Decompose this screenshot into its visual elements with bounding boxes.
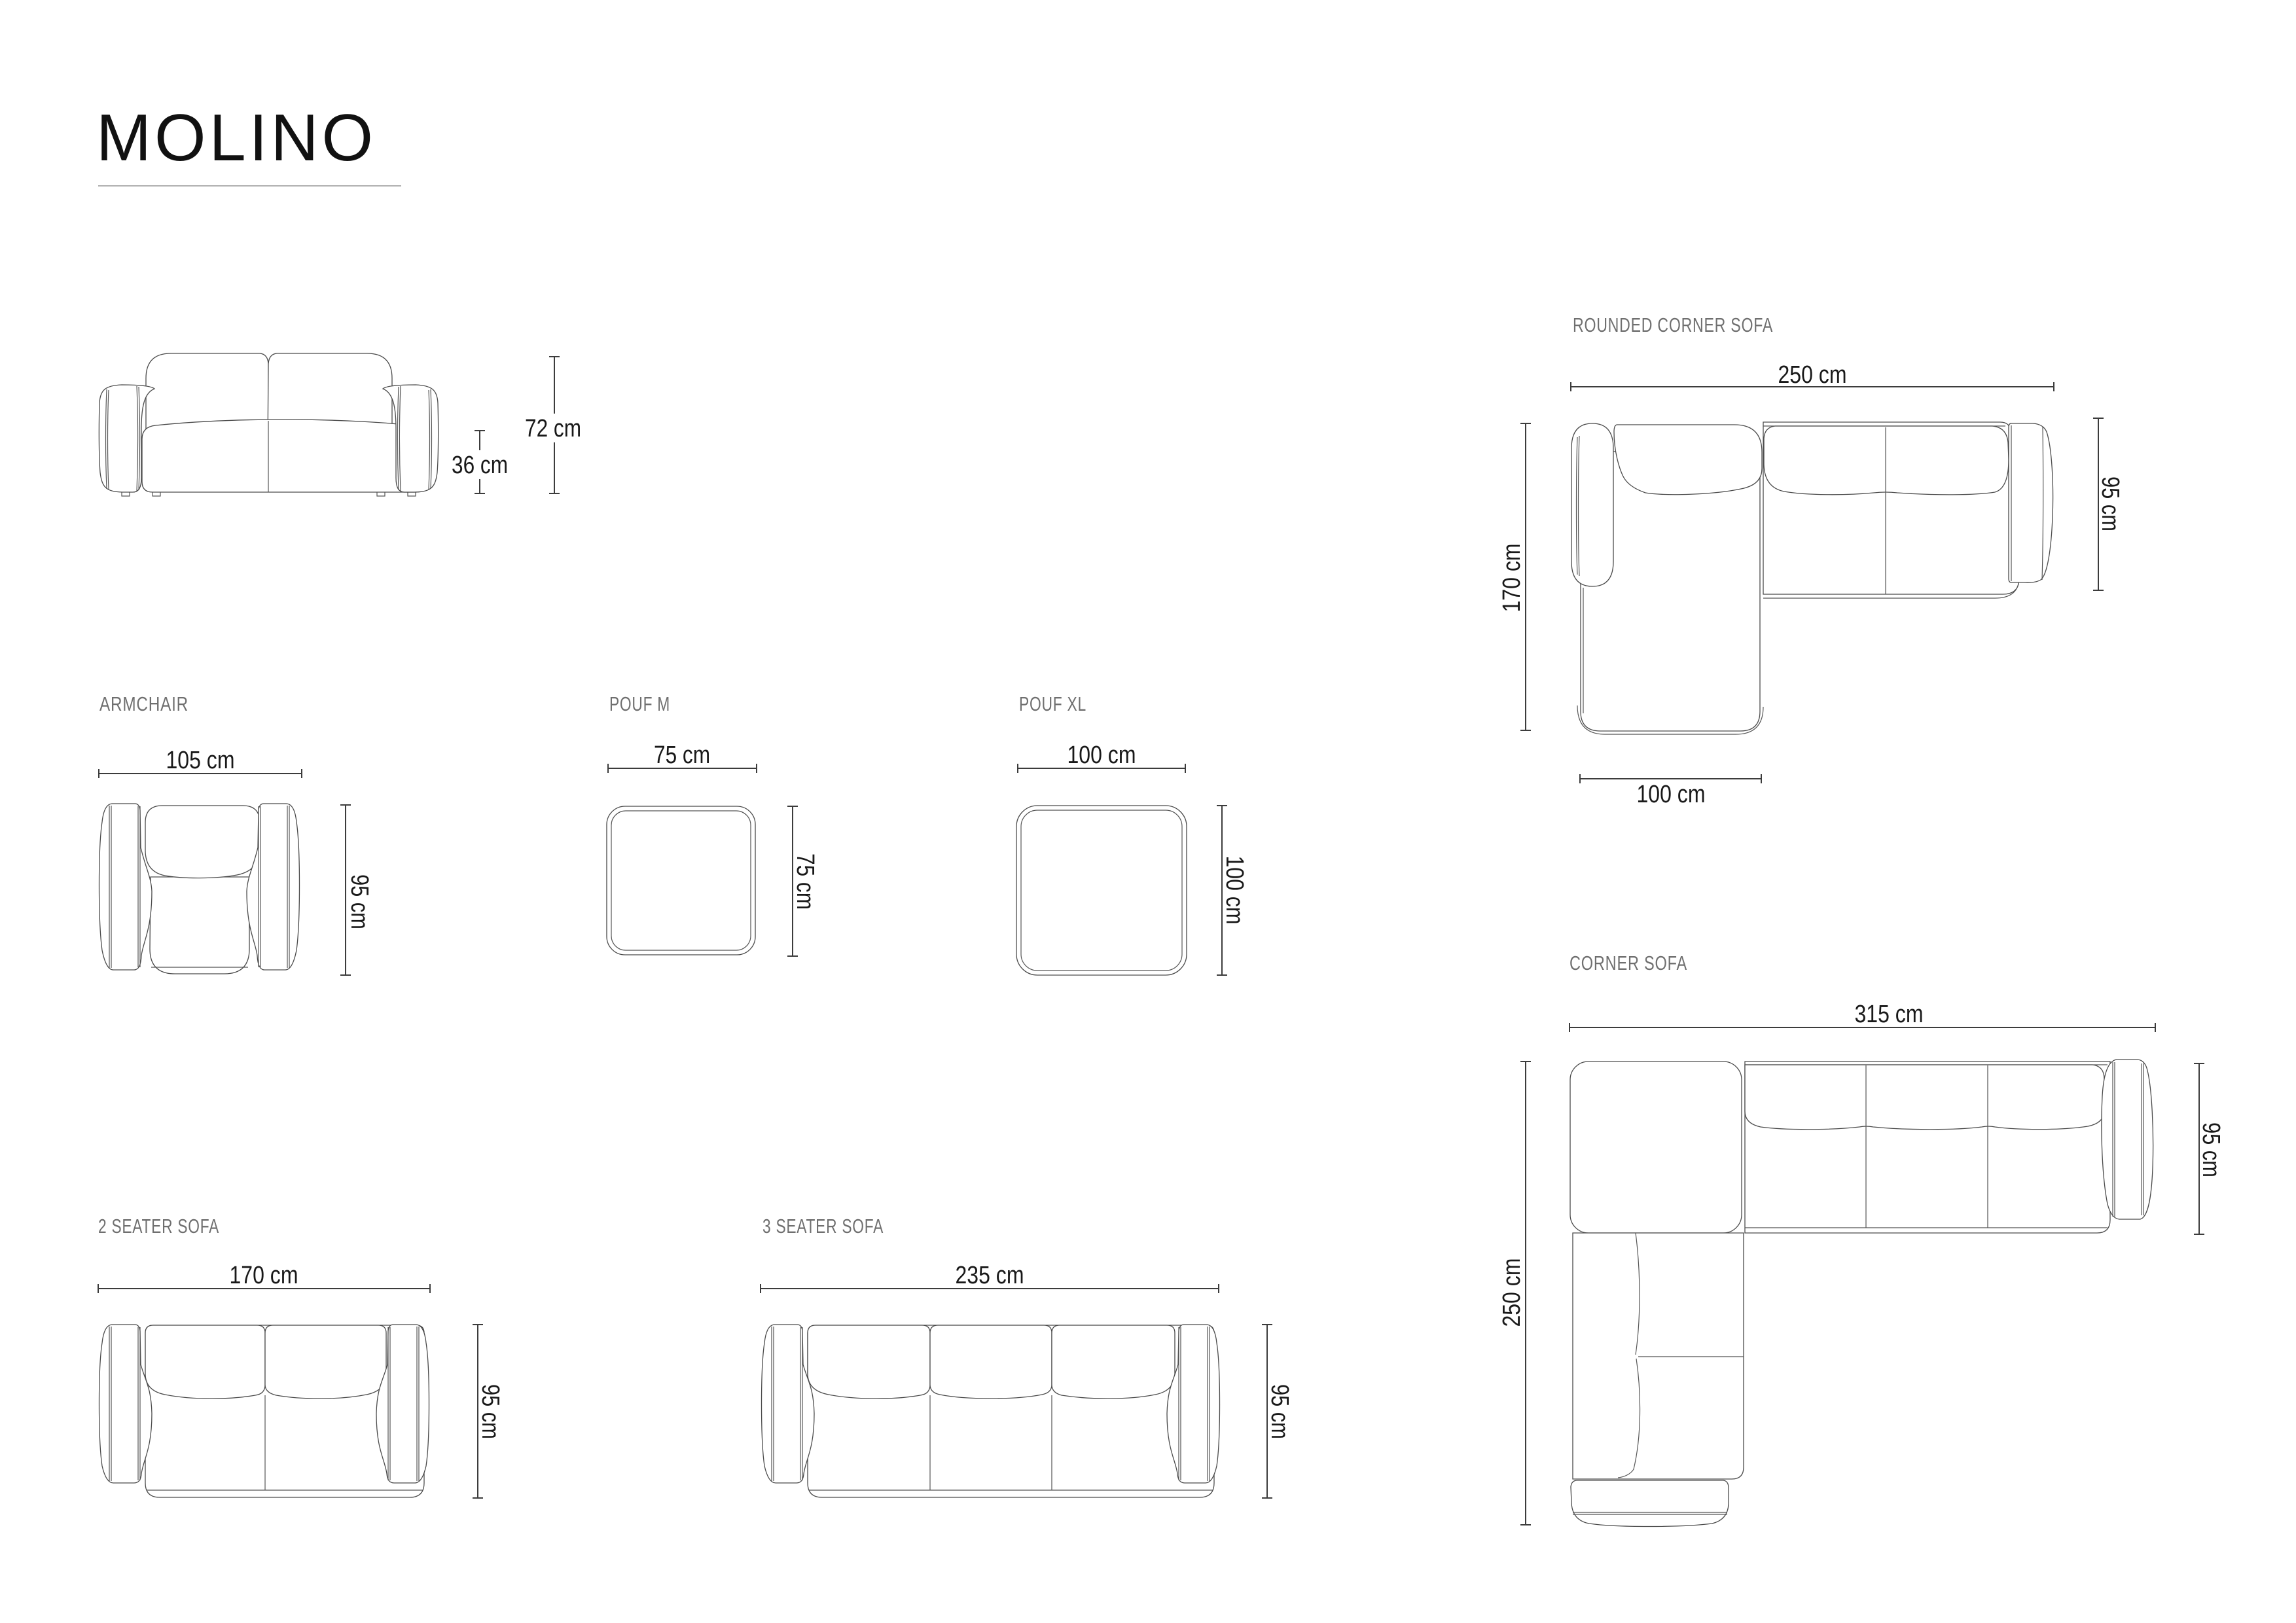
svg-text:100 cm: 100 cm	[1067, 741, 1136, 769]
svg-text:POUF M: POUF M	[609, 692, 670, 715]
svg-text:2 SEATER SOFA: 2 SEATER SOFA	[98, 1215, 219, 1238]
svg-text:3 SEATER SOFA: 3 SEATER SOFA	[762, 1215, 884, 1238]
svg-text:72 cm: 72 cm	[525, 415, 581, 442]
svg-text:100 cm: 100 cm	[1637, 781, 1706, 808]
svg-text:170 cm: 170 cm	[1498, 544, 1526, 613]
svg-text:75 cm: 75 cm	[654, 741, 710, 769]
svg-text:170 cm: 170 cm	[230, 1262, 298, 1289]
svg-text:95 cm: 95 cm	[476, 1384, 504, 1439]
svg-text:MOLINO: MOLINO	[96, 101, 373, 175]
svg-text:105 cm: 105 cm	[166, 747, 235, 774]
svg-text:75 cm: 75 cm	[791, 853, 819, 910]
svg-text:250 cm: 250 cm	[1498, 1258, 1526, 1327]
svg-text:95 cm: 95 cm	[1266, 1384, 1293, 1439]
svg-text:95 cm: 95 cm	[2096, 476, 2124, 531]
svg-text:250 cm: 250 cm	[1778, 361, 1847, 389]
svg-text:CORNER SOFA: CORNER SOFA	[1570, 952, 1687, 974]
svg-text:ARMCHAIR: ARMCHAIR	[99, 692, 188, 715]
svg-text:100 cm: 100 cm	[1221, 856, 1248, 925]
svg-text:315 cm: 315 cm	[1855, 1001, 1924, 1028]
svg-text:POUF XL: POUF XL	[1019, 692, 1086, 715]
svg-text:36 cm: 36 cm	[452, 452, 508, 479]
svg-text:95 cm: 95 cm	[346, 874, 373, 929]
svg-text:ROUNDED CORNER SOFA: ROUNDED CORNER SOFA	[1573, 313, 1773, 336]
svg-text:95 cm: 95 cm	[2197, 1122, 2225, 1177]
svg-text:235 cm: 235 cm	[956, 1262, 1024, 1289]
